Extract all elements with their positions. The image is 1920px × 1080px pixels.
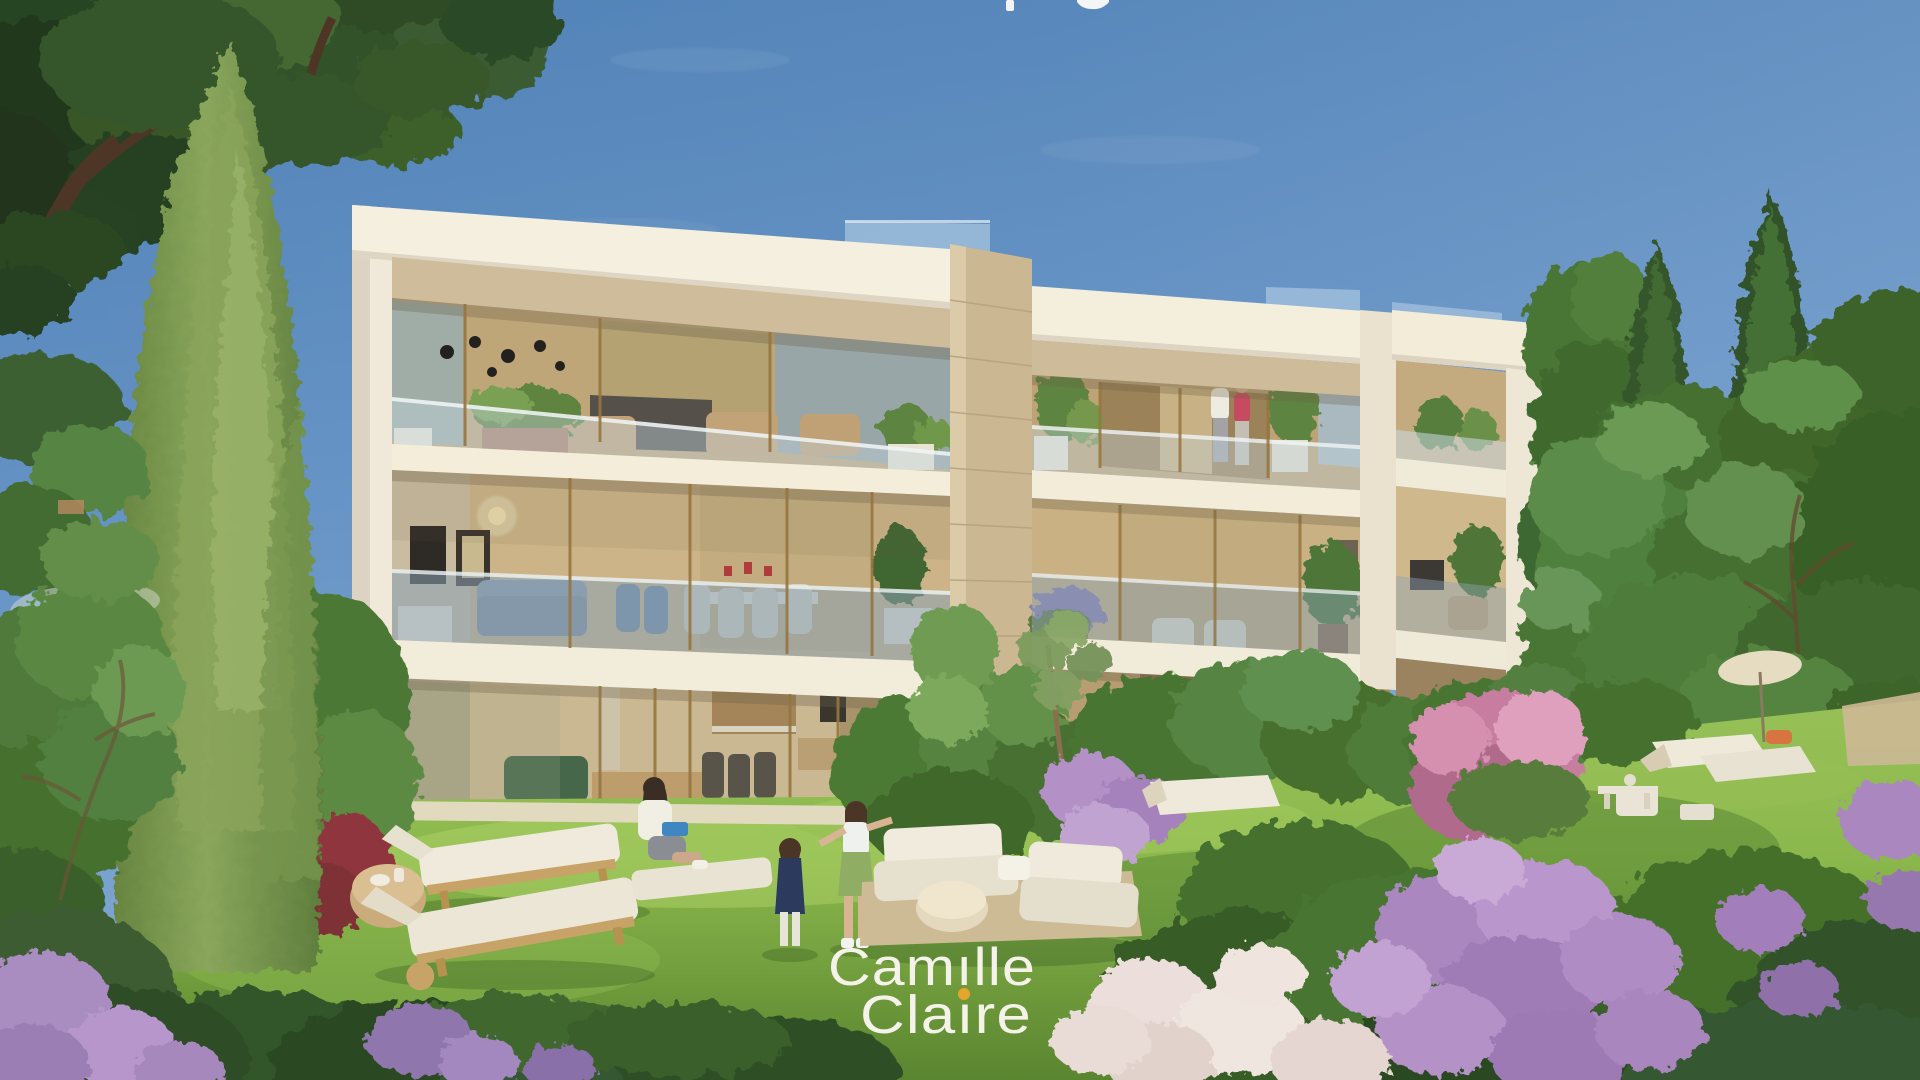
svg-text:Claıre: Claıre <box>860 985 1032 1045</box>
